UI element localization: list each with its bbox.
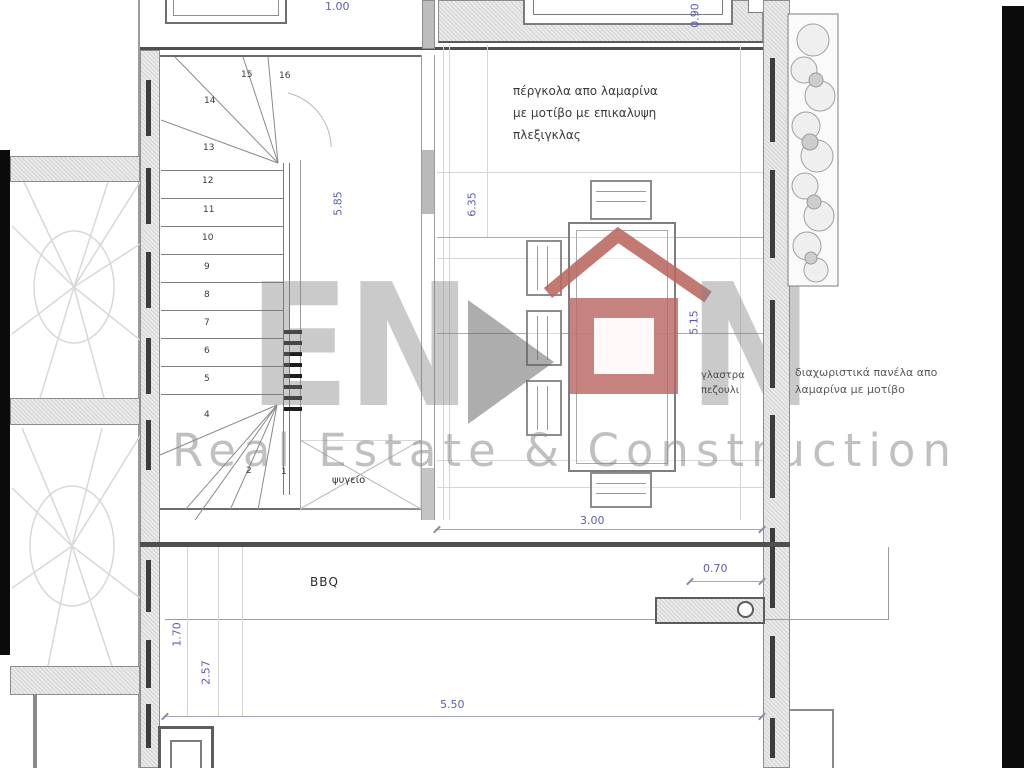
- stair-number: 7: [204, 318, 210, 328]
- dim-top: 1.00: [325, 0, 350, 13]
- stair-number: 6: [204, 346, 210, 356]
- bottom-planter-inner: [170, 740, 202, 768]
- stair-number: 13: [203, 143, 214, 153]
- stair-number: 15: [241, 70, 252, 80]
- planter-note-line2: πεζουλι: [701, 383, 745, 398]
- dim-top-right: 0.90: [689, 0, 702, 41]
- bbq-grid: [242, 547, 243, 717]
- stair-number: 4: [204, 410, 210, 420]
- dimline-3.00: [437, 529, 763, 530]
- partial-room-line: [790, 709, 834, 711]
- floor-plan: ψυγείο 16 15 14 13 12 11 10 9 8 7 6 5 4 …: [0, 0, 1024, 768]
- stair-number: 10: [202, 233, 213, 243]
- dim-stair-height: 5.85: [332, 179, 345, 229]
- neighbor-wall-middle: [10, 398, 140, 425]
- stair-number: 14: [204, 96, 215, 106]
- bbq-right-line: [888, 547, 889, 619]
- planter-note: γλαστρα πεζουλι: [701, 368, 745, 398]
- logo-house-window-icon: [594, 318, 654, 374]
- bbq-label: BBQ: [310, 574, 339, 591]
- stair-number: 12: [202, 176, 213, 186]
- left-wall-slat: [146, 704, 151, 748]
- right-wall-slat: [770, 415, 775, 498]
- dimline-0.70: [690, 581, 763, 582]
- spiral-stair-upper: [12, 182, 140, 398]
- dim-pergola-height: 6.35: [466, 180, 479, 230]
- pergola-note-line3: πλεξιγκλας: [513, 124, 658, 146]
- neighbor-wall-top: [10, 156, 140, 182]
- bbq-top-wall: [140, 542, 790, 547]
- dim-gap: 0.70: [703, 562, 728, 575]
- scan-border-right: [1002, 6, 1024, 768]
- watermark-brand-right: N: [688, 272, 813, 422]
- stair-number: 8: [204, 290, 210, 300]
- right-wall-slat: [770, 300, 775, 388]
- chair-top: [590, 180, 652, 220]
- pergola-note: πέργκολα απο λαμαρίνα με μοτίβο με επικα…: [513, 80, 658, 146]
- top-room-inner: [173, 0, 279, 16]
- pot-circle: [737, 601, 754, 618]
- left-wall-slat: [146, 560, 151, 612]
- stair-number: 9: [204, 262, 210, 272]
- watermark-brand-left: EN: [248, 272, 468, 422]
- bbq-bottom-line: [165, 619, 889, 620]
- neighbor-wall-bottom: [10, 666, 140, 695]
- stair-number: 11: [203, 205, 214, 215]
- panel-note-line1: διαχωριστικά πανέλα απο: [795, 364, 937, 381]
- right-wall-slat: [770, 636, 775, 698]
- dim-table-height: 5.15: [688, 298, 701, 348]
- pergola-grid: [437, 172, 763, 173]
- planter-note-line1: γλαστρα: [701, 368, 745, 383]
- right-wall-slat: [770, 528, 775, 608]
- dim-left-height-2: 2.57: [200, 648, 213, 698]
- partial-room-line: [832, 709, 834, 768]
- pergola-grid: [487, 45, 488, 237]
- right-wall-slat: [770, 58, 775, 142]
- panel-note-line2: λαμαρίνα με μοτίβο: [795, 381, 937, 398]
- dim-pergola-width: 3.00: [580, 514, 605, 527]
- pergola-note-line2: με μοτίβο με επικαλυψη: [513, 102, 658, 124]
- neighbor-wall-stub: [33, 695, 37, 768]
- left-wall-slat: [146, 640, 151, 688]
- chair-bottom: [590, 472, 652, 508]
- stair-number: 5: [204, 374, 210, 384]
- bbq-grid: [218, 547, 219, 717]
- pergola-note-line1: πέργκολα απο λαμαρίνα: [513, 80, 658, 102]
- dim-bottom-width: 5.50: [440, 698, 465, 711]
- dimline-5.50: [165, 716, 763, 717]
- watermark-tagline: Real Estate & Construction: [172, 424, 958, 477]
- shrub-bed: [786, 12, 840, 288]
- stair-number: 16: [279, 71, 290, 81]
- logo-triangle-icon: [468, 300, 554, 424]
- scan-border-left: [0, 150, 10, 655]
- bbq-grid: [187, 547, 188, 717]
- dim-left-height-1: 1.70: [171, 610, 184, 660]
- right-wall-slat: [770, 170, 775, 258]
- panel-note: διαχωριστικά πανέλα απο λαμαρίνα με μοτί…: [795, 364, 937, 398]
- top-corner-post: [748, 0, 764, 13]
- right-wall-slat: [770, 718, 775, 758]
- spiral-stair-lower: [12, 428, 140, 666]
